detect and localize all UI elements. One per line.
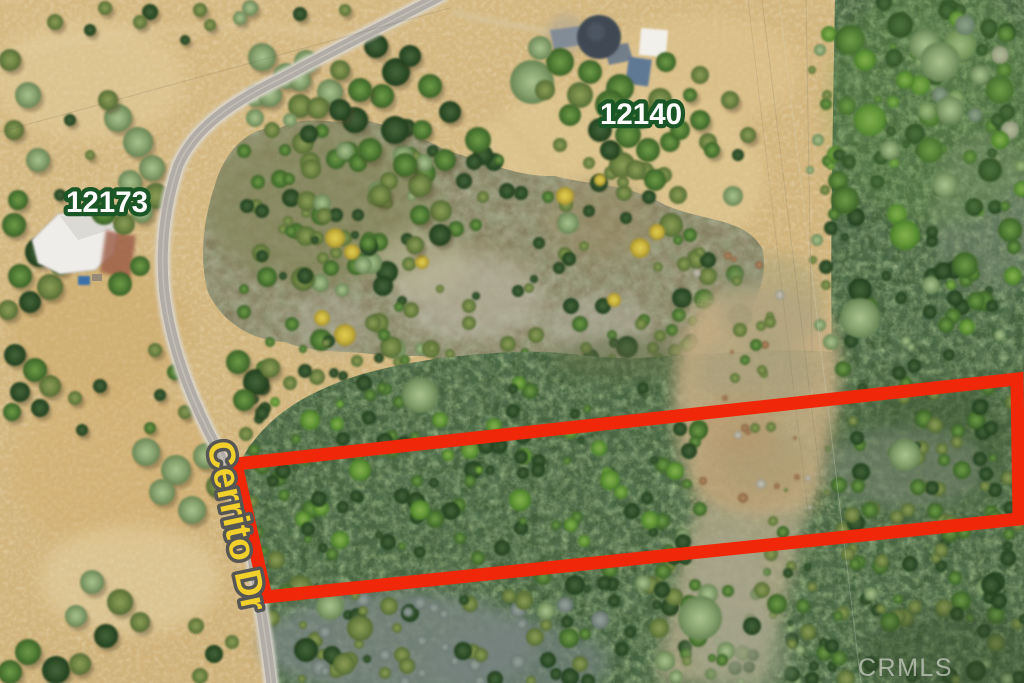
svg-text:12140: 12140 bbox=[600, 98, 682, 131]
svg-text:CRMLS: CRMLS bbox=[858, 654, 953, 682]
svg-text:12173: 12173 bbox=[66, 186, 148, 219]
